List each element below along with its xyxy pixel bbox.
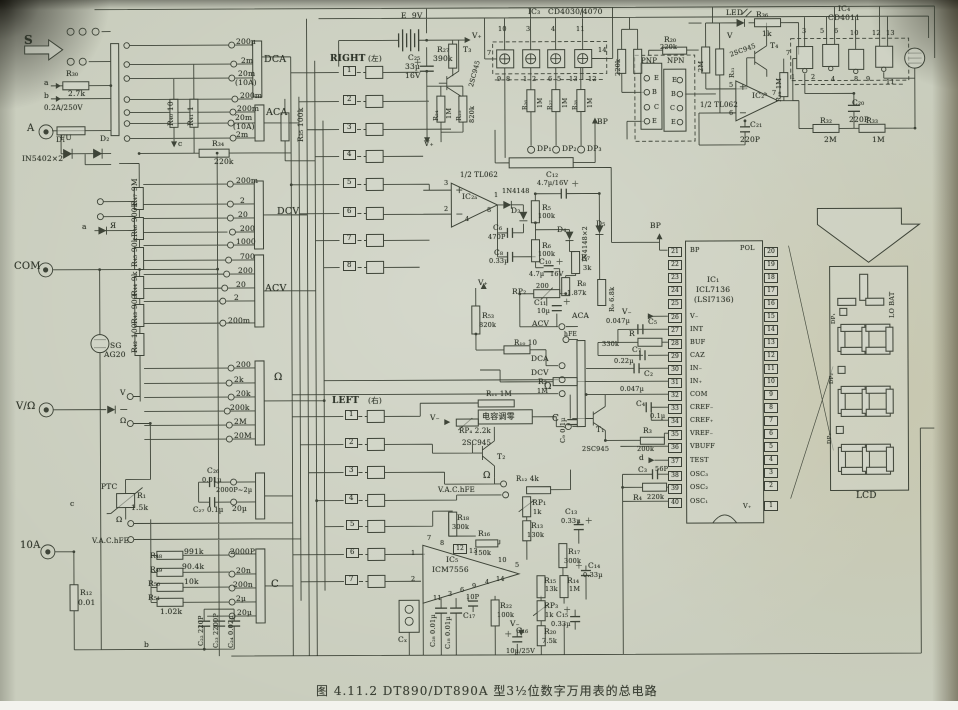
- acdc-converter-ic2a-label: D₄: [557, 226, 566, 234]
- protection-label: 2.7k: [68, 90, 85, 98]
- lcd-label: DP₂: [830, 373, 836, 384]
- ic1-pins-label: 25: [668, 299, 682, 309]
- acdc-converter-ic2a-label: C₁₀: [539, 258, 551, 266]
- switch-wafers-label: 1: [343, 66, 356, 76]
- function-zero-adjust-label: R₁₂ 4k: [516, 476, 539, 483]
- acdc-converter-ic2a-label: 200: [536, 283, 549, 290]
- res-cap-ranges-label: 2000P~2µ: [216, 487, 252, 494]
- current-ranges-label: (10A): [235, 79, 257, 87]
- switch-wafers-label: 5: [343, 178, 356, 188]
- acdc-converter-ic2a-label: 4: [465, 216, 469, 223]
- dp-logic-ic3-label: 6: [548, 76, 552, 83]
- acdc-converter-ic2a-label: 4.7µ/16V: [537, 180, 568, 187]
- acdc-converter-ic2a-label: 0.33µ: [489, 258, 509, 265]
- res-cap-ranges-label: 2M: [234, 418, 247, 426]
- ic1-pins-label: COM: [690, 391, 708, 398]
- res-cap-ranges-label: R₅₀: [148, 580, 160, 588]
- acdc-converter-ic2a-label: R₇: [581, 254, 590, 262]
- dp-logic-ic3-label: R₂₈: [573, 100, 579, 110]
- dp-logic-ic3-label: 14: [598, 47, 607, 54]
- buzzer-ic4-label: R₃₂: [820, 117, 832, 125]
- switch-wafers-label: 4: [345, 494, 358, 504]
- acdc-converter-ic2a-label: 470P: [488, 234, 506, 241]
- acdc-converter-ic2a-label: C₁₁: [534, 299, 546, 307]
- hfe-socket-label: B: [652, 89, 657, 96]
- protection-label: V.A.C.hFE: [92, 538, 129, 545]
- adc-ic1-label: C₂: [644, 370, 653, 378]
- switch-wafers-label: LEFT: [332, 397, 359, 406]
- ic1-pins-label: 35: [668, 430, 682, 440]
- adc-ic1-label: V₋: [622, 308, 632, 316]
- divider-ladder-label: R₄₃ 900: [131, 294, 139, 324]
- function-zero-adjust-label: 130k: [527, 532, 544, 539]
- adc-ic1-label: C₃: [638, 466, 647, 474]
- res-cap-ranges-label: C₂₆: [207, 467, 219, 475]
- function-zero-adjust-label: V.A.C.hFE: [438, 487, 475, 494]
- acdc-converter-ic2a-label: IC₂ₐ: [462, 193, 477, 201]
- switch-wafers-label: 1: [345, 410, 358, 420]
- hfe-socket-label: 2M: [698, 61, 705, 72]
- switch-wafers-label: 6: [346, 548, 359, 558]
- input-terminals-label: 10A: [20, 541, 41, 551]
- continuity-ic2b-label: 6: [729, 110, 733, 117]
- acdc-converter-ic2a-label: D₃: [511, 207, 520, 215]
- acdc-converter-ic2a-label: RP₂: [512, 288, 526, 296]
- function-zero-adjust-label: R₁₁ 1M: [486, 391, 512, 398]
- buzzer-ic4-label: C₂₀: [852, 99, 864, 107]
- cap-test-ic5-label: 11: [433, 595, 442, 602]
- buzzer-ic4-label: 13: [886, 30, 895, 37]
- dp-logic-ic3-label: 1M: [538, 98, 544, 108]
- ic1-pins-label: 10: [764, 377, 778, 387]
- adc-ic1-label: C₅: [648, 318, 657, 326]
- ic1-pins-label: 17: [764, 286, 778, 296]
- dp-logic-ic3-label: 1M: [588, 98, 594, 108]
- dp-logic-ic3-label: 2: [532, 76, 536, 83]
- dp-logic-ic3-label: R₂₇: [548, 100, 554, 110]
- ic1-pins-label: 30: [668, 365, 682, 375]
- ic1-pins-label: BUF: [690, 339, 705, 346]
- dp-logic-ic3-label: 5: [557, 76, 561, 83]
- ic1-pins-label: 1: [764, 501, 778, 511]
- acdc-converter-ic2a-label: R₉ 6.8k: [609, 287, 616, 312]
- res-cap-ranges-label: Ω: [274, 373, 283, 383]
- cap-test-ic5-label: 13: [469, 548, 478, 555]
- protection-label: 1.5k: [131, 504, 148, 512]
- dp-logic-ic3-label: 1M: [563, 98, 569, 108]
- adc-ic1-label: C₇: [632, 346, 641, 354]
- switch-wafers-label: 4: [343, 150, 356, 160]
- dp-logic-ic3-label: DP₁: [537, 145, 552, 153]
- cap-test-ic5-label: 12: [453, 544, 467, 554]
- cap-test-ic5-label: 5: [515, 562, 519, 569]
- ic1-pins-label: V₋: [690, 313, 699, 320]
- adc-ic1-label: POL: [740, 245, 755, 252]
- current-ranges-label: R₃₄: [212, 140, 224, 148]
- function-zero-adjust-label: 电容调零: [482, 413, 515, 421]
- lcd-label: DP₁: [832, 313, 838, 324]
- res-cap-ranges-label: 2000P: [230, 548, 255, 556]
- acdc-converter-ic2a-label: 10µ: [537, 308, 550, 315]
- continuity-ic2b-label: 2SC945: [729, 43, 757, 58]
- buzzer-ic4-label: 1: [791, 74, 795, 81]
- protection-label: c: [178, 140, 182, 148]
- ic1-pins-label: 22: [668, 260, 682, 270]
- dp-logic-ic3-label: 3: [526, 26, 530, 33]
- switch-wafers-label: 6: [343, 207, 356, 217]
- buzzer-ic4-label: 12: [872, 30, 881, 37]
- current-ranges-label: 200m: [237, 105, 259, 113]
- adc-ic1-label: C₄: [636, 400, 645, 408]
- current-ranges-label: 20m: [235, 114, 252, 122]
- ic1-pins-label: OSC₃: [690, 471, 708, 478]
- ic1-pins-label: IN₊: [690, 378, 702, 385]
- protection-label: R₁₂: [80, 589, 92, 597]
- cap-test-ic5-label: C₁₅: [556, 611, 568, 619]
- adc-ic1-label: R: [629, 330, 635, 338]
- ic1-pins-label: 36: [668, 443, 682, 453]
- res-cap-ranges-label: 2µ: [236, 595, 246, 603]
- dp-logic-ic3-label: 12: [588, 76, 597, 83]
- dp-logic-ic3-label: 9: [497, 76, 501, 83]
- ic1-pins-label: 34: [668, 417, 682, 427]
- ic1-pins-label: 38: [668, 471, 682, 481]
- divider-ladder-label: R₄₂ 100: [131, 323, 139, 353]
- current-ranges-label: ACA: [266, 108, 288, 118]
- acdc-converter-ic2a-label: ACA: [572, 312, 589, 320]
- ic1-pins-label: VREF₋: [690, 430, 713, 437]
- current-ranges-label: 200m: [240, 92, 262, 100]
- cap-test-ic5-label: 13k: [545, 586, 558, 593]
- ic1-pins-label: 21: [668, 247, 682, 257]
- buzzer-ic4-label: R₃₃: [866, 117, 878, 125]
- hfe-socket-label: C: [654, 104, 659, 111]
- divider-ladder-label: R₄₄ 9k: [131, 271, 139, 296]
- cap-test-ic5-label: Cₓ: [398, 636, 407, 644]
- adc-ic1-label: T₁: [596, 426, 604, 434]
- ic1-pins-label: TEST: [690, 457, 709, 464]
- dp-logic-ic3-label: R₂₆: [523, 100, 529, 110]
- ic1-pins-label: VBUFF: [690, 443, 715, 450]
- protection-label: b: [144, 641, 149, 649]
- current-ranges-label: 2m: [241, 57, 253, 65]
- buzzer-ic4-label: 1M: [872, 136, 885, 144]
- cap-test-ic5-label: C₁₆: [516, 627, 528, 635]
- voltage-ranges-label: 20: [238, 211, 248, 219]
- ic1-pins-label: 28: [668, 339, 682, 349]
- cap-test-ic5-label: C₁₈ 0.01µ: [445, 616, 452, 649]
- function-zero-adjust-label: R₁₈: [457, 514, 469, 522]
- acdc-converter-ic2a-label: 820k: [479, 322, 496, 329]
- current-ranges-label: 20m: [238, 70, 255, 78]
- buzzer-ic4-label: 10: [850, 30, 859, 37]
- ic1-pins-label: 12: [764, 351, 778, 361]
- hfe-socket-label: E: [671, 119, 676, 126]
- res-cap-ranges-label: R₄₈: [150, 552, 162, 560]
- acdc-converter-ic2a-label: R₈: [577, 280, 586, 288]
- ic1-pins-label: 31: [668, 378, 682, 388]
- ic1-pins-label: IN₋: [690, 365, 702, 372]
- cap-test-ic5-label: C₂₈ 0.01µ: [430, 614, 437, 647]
- current-ranges-label: 2m: [236, 131, 248, 139]
- acdc-converter-ic2a-label: ACV: [532, 320, 549, 328]
- ic1-pins-label: 18: [764, 273, 778, 283]
- acdc-converter-ic2a-label: DCV: [531, 369, 549, 377]
- lcd-label: LO BAT: [889, 292, 896, 318]
- ic1-pins-label: 37: [668, 457, 682, 467]
- adc-ic1-label: 2SC945: [582, 446, 609, 453]
- ic1-pins-label: 5: [764, 442, 778, 452]
- voltage-ranges-label: 200m: [228, 317, 250, 325]
- acdc-converter-ic2a-label: D₅: [596, 220, 605, 228]
- ic1-pins-label: 20: [764, 247, 778, 257]
- switch-wafers-label: 8: [343, 261, 356, 271]
- res-cap-ranges-label: R₄₉: [150, 566, 162, 574]
- hfe-socket-label: PNP: [641, 58, 657, 65]
- dp-logic-ic3-label: DP₃: [587, 145, 602, 153]
- current-ranges-label: DCA: [264, 55, 286, 65]
- res-cap-ranges-label: 200k: [230, 404, 250, 412]
- cap-test-ic5-label: 10µ/25V: [506, 648, 535, 655]
- switch-wafers-label: RIGHT: [330, 55, 366, 64]
- continuity-ic2b-label: R₃₈ 1M: [776, 78, 783, 102]
- input-terminals-label: V/Ω: [16, 402, 35, 412]
- ic1-pins-label: 23: [668, 273, 682, 283]
- continuity-ic2b-label: LED: [726, 9, 743, 17]
- adc-ic1-label: 0.22µ: [614, 358, 634, 365]
- voltage-ranges-label: DCV: [277, 207, 299, 217]
- buzzer-ic4-label: 7: [786, 50, 790, 57]
- power-supply-label: R₂₅: [456, 110, 463, 121]
- hfe-socket-label: E: [654, 75, 659, 82]
- adc-ic1-label: 0.047µ: [620, 386, 644, 393]
- continuity-ic2b-label: C₂₁: [750, 121, 762, 129]
- adc-ic1-label: d: [639, 454, 644, 462]
- ic1-pins-label: 7: [764, 416, 778, 426]
- res-cap-ranges-label: 0.01µ: [202, 477, 222, 484]
- current-ranges-label: 220k: [214, 158, 234, 166]
- scanned-schematic-page: SACOMV/Ω10AabR₃₀2.7k0.2A/250VFUD₁D₂IN540…: [0, 0, 958, 710]
- function-zero-adjust-label: RP₄ 2.2k: [459, 428, 491, 435]
- buzzer-ic4-label: CD4011: [828, 14, 860, 22]
- voltage-ranges-label: 200m: [236, 177, 258, 185]
- cap-test-ic5-label: IC₅: [446, 556, 458, 564]
- dp-logic-ic3-label: 11: [576, 26, 585, 33]
- dp-logic-ic3-label: 8: [506, 76, 510, 83]
- ic1-pins-label: 32: [668, 391, 682, 401]
- switch-wafers-label: 3: [345, 466, 358, 476]
- dp-logic-ic3-label: 7: [487, 50, 491, 57]
- protection-label: IN5402×2: [22, 155, 63, 163]
- ic1-pins-label: 4: [764, 455, 778, 465]
- hfe-socket-label: B: [671, 91, 676, 98]
- dp-logic-ic3-label: 13: [569, 76, 578, 83]
- hfe-socket-label: R₃₁: [729, 67, 736, 78]
- buzzer-ic4-label: 4: [831, 76, 835, 83]
- hfe-socket-label: 220k: [615, 59, 622, 76]
- protection-label: b: [44, 92, 49, 100]
- hfe-socket-label: E: [672, 77, 677, 84]
- power-supply-label: 16V: [405, 72, 421, 80]
- continuity-ic2b-label: 1k: [762, 30, 772, 38]
- continuity-ic2b-label: V: [727, 32, 733, 40]
- acdc-converter-ic2a-label: C₁₂: [546, 171, 558, 179]
- voltage-ranges-label: 1000: [236, 238, 256, 246]
- ic1-pins-label: 39: [668, 484, 682, 494]
- power-supply-label: R₂₇: [437, 46, 449, 54]
- function-zero-adjust-label: RP₁: [532, 499, 546, 507]
- input-terminals-label: COM: [14, 262, 41, 272]
- adc-ic1-label: R₄: [633, 494, 642, 502]
- switch-wafers-label: 2: [345, 438, 358, 448]
- power-supply-label: 390k: [433, 55, 453, 63]
- protection-label: D₁: [56, 136, 65, 144]
- voltage-ranges-label: 200: [240, 225, 255, 233]
- switch-wafers-label: 5: [346, 520, 359, 530]
- buzzer-ic4-label: 9: [866, 76, 870, 83]
- acdc-converter-ic2a-label: C₈: [494, 249, 503, 257]
- current-ranges-label: R₄₁ 1: [187, 106, 195, 126]
- acdc-converter-ic2a-label: DCA: [531, 355, 549, 363]
- adc-ic1-label: 56P: [655, 466, 668, 473]
- adc-ic1-label: V₊: [743, 503, 752, 510]
- res-cap-ranges-label: C₂₃ 2200P: [213, 613, 220, 648]
- acdc-converter-ic2a-label: V₊: [478, 279, 488, 287]
- voltage-ranges-label: ACV: [265, 284, 287, 294]
- protection-label: SG: [110, 342, 122, 350]
- acdc-converter-ic2a-label: 16V: [550, 271, 564, 278]
- divider-ladder-label: R₄₆ 900k: [131, 202, 139, 237]
- function-zero-adjust-label: 2SC945: [462, 440, 491, 447]
- acdc-converter-ic2a-label: 1.87k: [567, 290, 586, 297]
- res-cap-ranges-label: C₂₂ 220P: [198, 615, 205, 646]
- ic1-pins-label: OSC₂: [690, 484, 708, 491]
- cap-test-ic5-label: 2: [411, 576, 415, 583]
- ic1-pins-label: CREF₋: [690, 404, 714, 411]
- ic1-pins-label: 6: [764, 429, 778, 439]
- adc-ic1-label: BP: [650, 222, 661, 230]
- ic1-pins-label: BP: [690, 247, 700, 254]
- res-cap-ranges-label: 200n: [233, 581, 253, 589]
- page-edge: [0, 701, 958, 710]
- res-cap-ranges-label: 20µ: [237, 609, 252, 617]
- cap-test-ic5-label: 1k: [545, 612, 553, 619]
- cap-test-ic5-label: R₁₇: [568, 548, 580, 556]
- ic1-pins-label: 19: [764, 260, 778, 270]
- res-cap-ranges-label: 10k: [184, 578, 199, 586]
- function-zero-adjust-label: 1k: [533, 509, 541, 516]
- cap-test-ic5-label: 10P: [466, 594, 479, 601]
- cap-test-ic5-label: C₁₃: [565, 508, 577, 516]
- protection-label: PTC: [101, 483, 117, 491]
- acdc-converter-ic2a-label: 4.7µ: [529, 271, 544, 278]
- cap-test-ic5-label: 10: [498, 557, 507, 564]
- ic1-pins-label: 14: [764, 325, 778, 335]
- cap-test-ic5-label: 0.33µ: [561, 518, 581, 525]
- voltage-ranges-label: 2: [234, 294, 239, 302]
- cap-test-ic5-label: 0.33µ: [583, 572, 603, 579]
- protection-label: c: [70, 500, 74, 508]
- dp-logic-ic3-label: CD4030/4070: [548, 8, 603, 16]
- continuity-ic2b-label: 220P: [740, 136, 760, 144]
- cap-test-ic5-label: 6: [460, 587, 464, 594]
- acdc-converter-ic2a-label: 1: [494, 192, 498, 199]
- ic1-pins-label: 11: [764, 364, 778, 374]
- ic1-pins-label: INT: [690, 326, 703, 333]
- current-ranges-label: R₄₀ 10: [167, 101, 175, 126]
- cap-test-ic5-label: C₁₇: [463, 612, 475, 620]
- cap-test-ic5-label: 1: [411, 550, 415, 557]
- acdc-converter-ic2a-label: R₁₀ 10: [514, 340, 537, 347]
- power-supply-label: E 9V: [401, 12, 422, 20]
- acdc-converter-ic2a-label: 8: [487, 207, 491, 214]
- cap-test-ic5-label: 100k: [497, 612, 514, 619]
- divider-ladder-label: R₄₅ 90k: [131, 237, 139, 267]
- power-supply-label: R₂₄: [433, 110, 440, 121]
- ic1-pins-label: 26: [668, 313, 682, 323]
- cap-test-ic5-label: R₂₂: [500, 602, 512, 610]
- continuity-ic2b-label: R₃₆: [756, 11, 768, 19]
- ic1-pins-label: OSC₁: [690, 498, 708, 505]
- dp-logic-ic3-label: IC₃: [528, 8, 540, 16]
- hfe-socket-label: NPN: [667, 58, 685, 65]
- lcd-label: LCD: [856, 492, 877, 501]
- acdc-converter-ic2a-label: R₅: [542, 204, 551, 212]
- dp-logic-ic3-label: BP: [597, 118, 608, 126]
- adc-ic1-label: C₉ 0.1µ: [560, 417, 567, 443]
- switch-wafers-label: 7: [345, 575, 358, 585]
- adc-ic1-label: R₂: [538, 378, 547, 386]
- ic1-pins-label: 16: [764, 299, 778, 309]
- cap-test-ic5-label: R₁₅: [544, 577, 556, 585]
- dp-logic-ic3-label: 10: [498, 26, 507, 33]
- label-layer: SACOMV/Ω10AabR₃₀2.7k0.2A/250VFUD₁D₂IN540…: [0, 0, 958, 710]
- dp-logic-ic3-label: 4: [551, 26, 555, 33]
- acdc-converter-ic2a-label: 1/2 TL062: [460, 172, 498, 179]
- cap-test-ic5-label: 4: [485, 579, 489, 586]
- adc-ic1-label: 200k: [637, 446, 654, 453]
- ic1-pins-label: 15: [764, 312, 778, 322]
- acdc-converter-ic2a-label: 1N4148: [502, 188, 530, 195]
- res-cap-ranges-label: 20n: [236, 567, 251, 575]
- dp-logic-ic3-label: DP₂: [562, 145, 577, 153]
- ic1-pins-label: 24: [668, 286, 682, 296]
- res-cap-ranges-label: 1.02k: [160, 608, 182, 616]
- power-supply-label: C₂₅: [408, 54, 420, 62]
- res-cap-ranges-label: C₂₇ 0.1µ: [193, 507, 223, 514]
- protection-label: AG20: [104, 351, 126, 359]
- switch-wafers-label: 3: [343, 123, 356, 133]
- dp-logic-ic3-label: 1: [523, 76, 527, 83]
- power-supply-label: V₊: [472, 32, 482, 40]
- hfe-socket-label: C: [670, 105, 675, 112]
- cap-test-ic5-label: RP₃: [544, 602, 558, 610]
- hfe-socket-label: E: [652, 118, 657, 125]
- lcd-label: DP₃: [828, 433, 834, 444]
- protection-label: Ω: [116, 516, 122, 524]
- protection-label: Я: [110, 222, 116, 230]
- adc-ic1-label: 220k: [647, 494, 664, 501]
- voltage-ranges-label: 200: [238, 267, 253, 275]
- ic1-pins-label: 27: [668, 326, 682, 336]
- res-cap-ranges-label: 991k: [184, 548, 204, 556]
- cap-test-ic5-label: C₁₄: [588, 562, 600, 570]
- res-cap-ranges-label: 20k: [236, 390, 251, 398]
- buzzer-ic4-label: 11: [886, 79, 895, 86]
- adc-ic1-label: 0.1µ: [650, 413, 665, 420]
- buzzer-ic4-label: 2: [811, 74, 815, 81]
- ic1-pins-label: 13: [764, 338, 778, 348]
